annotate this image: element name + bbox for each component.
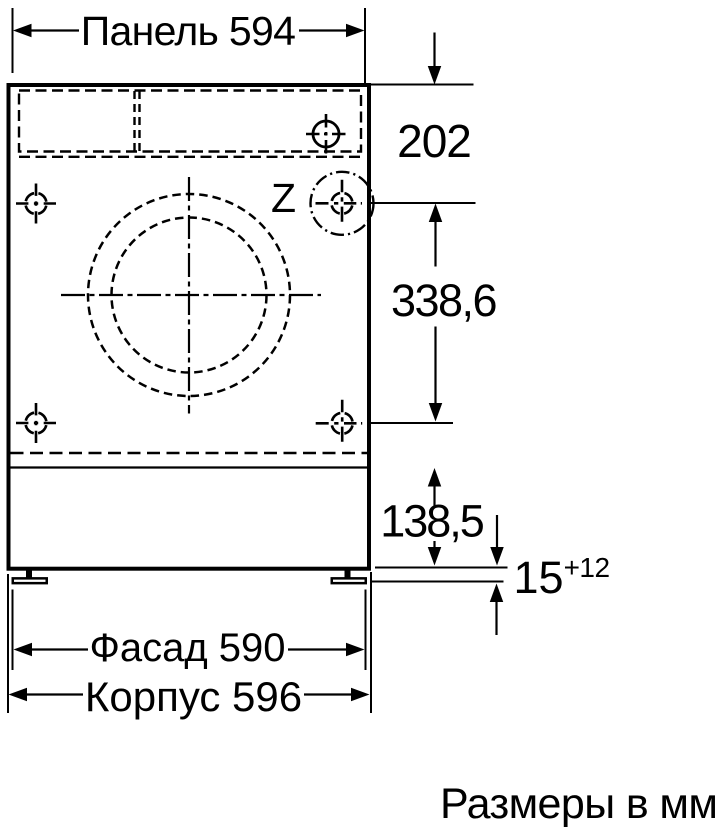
svg-text:Фасад 590: Фасад 590 — [89, 626, 285, 670]
svg-text:Z: Z — [271, 175, 296, 221]
svg-text:138,5: 138,5 — [380, 496, 484, 547]
svg-text:338,6: 338,6 — [391, 275, 497, 326]
svg-text:Панель 594: Панель 594 — [81, 8, 295, 54]
svg-text:Корпус 596: Корпус 596 — [85, 673, 302, 720]
svg-text:202: 202 — [397, 115, 471, 167]
svg-text:Размеры в мм: Размеры в мм — [440, 780, 717, 828]
